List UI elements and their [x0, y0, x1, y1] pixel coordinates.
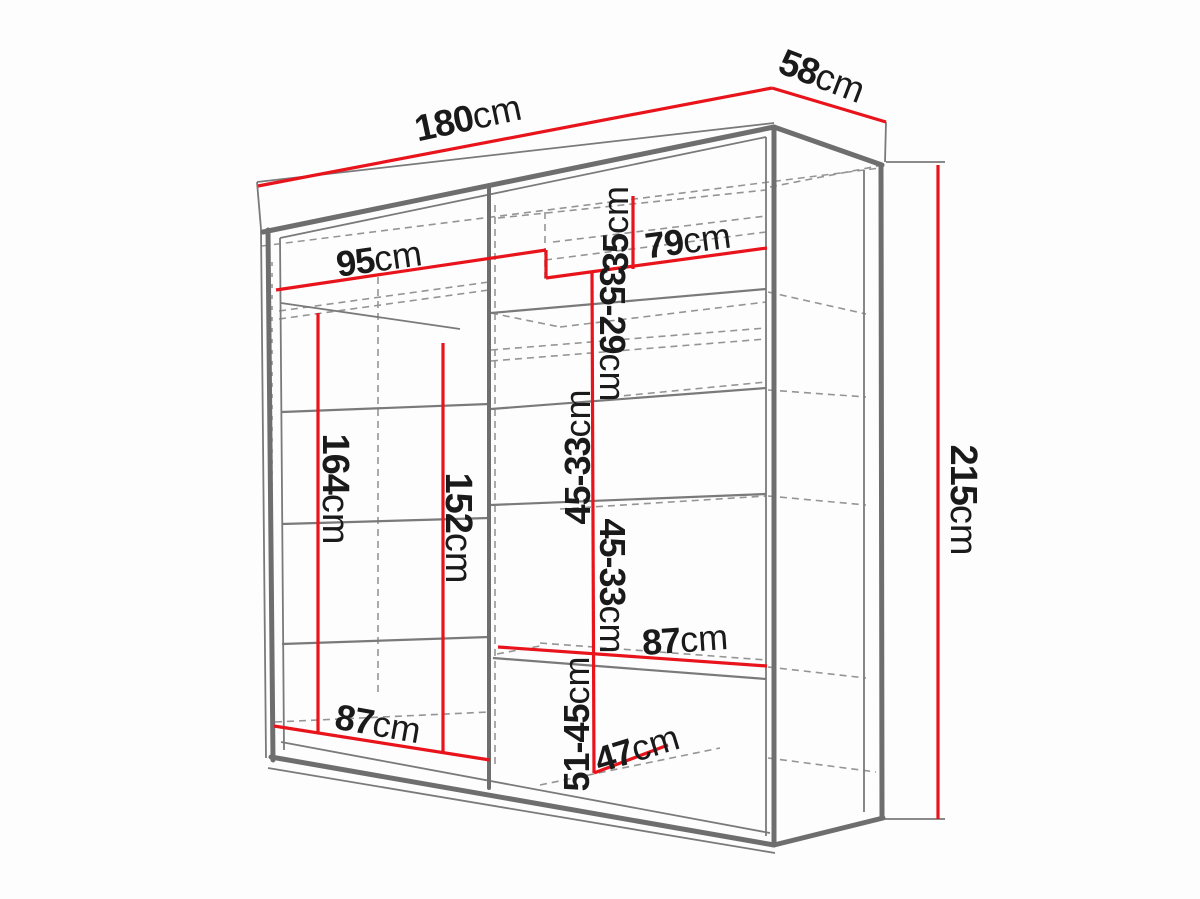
outer-left-line	[261, 229, 266, 758]
dim-label-45-33cm-lower: 45-33cm	[594, 518, 630, 653]
depth-extension-line	[885, 122, 886, 162]
left-shelf-3	[282, 637, 489, 644]
bottom-front-edge	[271, 757, 774, 845]
left-shelf-1	[282, 404, 489, 412]
back-right-edge	[881, 165, 882, 818]
bottom-side-edge	[774, 818, 883, 845]
base-shadow-line	[268, 768, 775, 853]
dim-label-164cm: 164cm	[316, 433, 354, 544]
dim-label-152cm: 152cm	[439, 472, 477, 583]
right-shelf-3	[491, 494, 766, 505]
inner-floor-line	[281, 742, 770, 833]
top-side-edge	[774, 127, 882, 165]
inner-left-wall	[280, 238, 284, 750]
top-back-edge	[257, 123, 774, 182]
wardrobe-dimension-diagram: 180cm 58cm 215cm 95cm 79cm 35cm 35-29cm …	[0, 0, 1200, 899]
dim-label-35-29cm: 35-29cm	[594, 266, 630, 401]
top-left-end-edge	[257, 182, 261, 229]
dim-label-35cm: 35cm	[598, 186, 634, 272]
dim-label-51-45cm: 51-45cm	[559, 656, 595, 791]
top-shelf-depth-line	[281, 303, 460, 329]
dim-label-215cm: 215cm	[944, 444, 982, 555]
right-shelf-4	[493, 658, 766, 679]
dim-label-45-33cm-upper: 45-33cm	[560, 389, 596, 524]
top-front-edge	[263, 127, 774, 232]
dim-label-87cm-right: 87cm	[641, 619, 729, 661]
